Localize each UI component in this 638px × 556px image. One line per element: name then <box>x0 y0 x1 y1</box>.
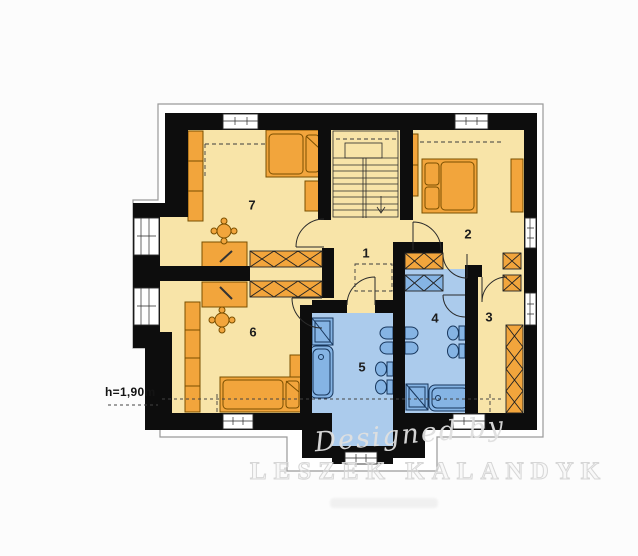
wardrobe-room6 <box>185 302 200 412</box>
cabinet-row-hall-orange <box>405 253 443 269</box>
room-label-5: 5 <box>358 360 365 375</box>
shower-room4 <box>406 384 428 410</box>
cabinet-room2-corner <box>503 253 521 269</box>
window-right-lower <box>525 293 536 325</box>
room-label-6: 6 <box>249 325 256 340</box>
room-label-3: 3 <box>485 310 492 325</box>
sink-room5-2 <box>380 342 393 354</box>
window-left-lower <box>134 288 159 325</box>
shelf-room7 <box>305 181 320 211</box>
bed-room7 <box>266 130 322 177</box>
cabinet-row-room6 <box>250 281 322 297</box>
bathtub-room5 <box>310 346 333 398</box>
window-top-right <box>455 114 488 129</box>
room-label-7: 7 <box>248 198 255 213</box>
sink-room5-1 <box>380 327 393 339</box>
room-label-2: 2 <box>464 227 471 242</box>
window-bottom-left <box>223 414 253 429</box>
watermark-faint-line <box>330 498 438 508</box>
room-label-1: 1 <box>362 246 369 261</box>
nightstand-room2-right <box>511 159 523 212</box>
floor-plan: 1 2 3 4 5 6 7 h=1,90m Designed by LESZEK… <box>0 0 638 556</box>
watermark-author: LESZEK KALANDYK <box>250 458 607 486</box>
sink-room4-1 <box>405 327 418 339</box>
cabinet-row-room7 <box>250 251 322 267</box>
double-bed-room2 <box>422 159 477 213</box>
toilet-room4-1 <box>448 326 466 340</box>
sink-room4-2 <box>405 342 418 354</box>
wardrobe-room3 <box>506 325 523 413</box>
toilet-room4-2 <box>448 344 466 358</box>
window-top-left <box>223 114 258 129</box>
wardrobe-room7 <box>188 131 203 221</box>
height-annotation: h=1,90m <box>105 385 155 399</box>
window-right-upper <box>525 218 536 248</box>
bed-room6 <box>220 377 302 412</box>
toilet-room5-2 <box>376 380 394 394</box>
room-label-4: 4 <box>431 311 438 326</box>
desk-room6 <box>202 282 247 307</box>
toilet-room5-1 <box>376 362 394 376</box>
bathtub-room4 <box>429 385 471 411</box>
window-left-upper <box>134 218 159 255</box>
desk-room7 <box>202 242 247 267</box>
cabinet-row-bath4-blue <box>405 275 443 291</box>
shower-room5 <box>312 318 333 345</box>
